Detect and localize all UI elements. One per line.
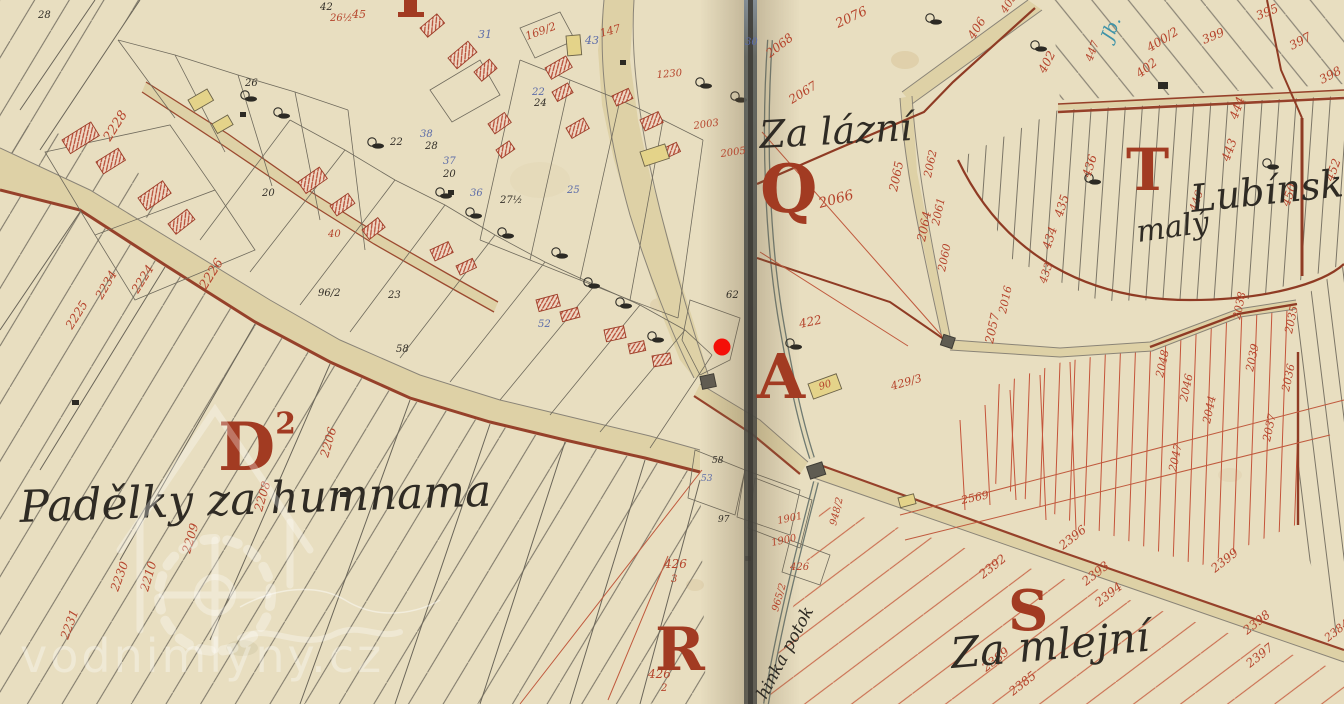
parcel-number: 27½ bbox=[499, 195, 522, 206]
watermark-text: vodnimlyny.cz bbox=[20, 629, 384, 683]
map-canvas[interactable]: 2228222622242225223422062208220922102230… bbox=[0, 0, 1344, 704]
parcel-number: 20 bbox=[442, 169, 456, 180]
parcel-number: 43 bbox=[584, 34, 599, 47]
parcel-number: 97 bbox=[718, 515, 730, 525]
section-letter-q: Q bbox=[760, 150, 818, 228]
parcel-number: 22 bbox=[389, 137, 403, 148]
cadastral-map-screenshot: 2228222622242225223422062208220922102230… bbox=[0, 0, 1344, 704]
parcel-number: 426 bbox=[663, 557, 687, 571]
section-letter-a: A bbox=[756, 340, 806, 413]
section-letter-t: T bbox=[1126, 136, 1169, 204]
parcel-number: 3 bbox=[671, 574, 677, 585]
parcel-number: 426 bbox=[789, 562, 810, 573]
parcel-number: 96/2 bbox=[318, 288, 340, 299]
parcel-number: 37 bbox=[443, 156, 456, 167]
parcel-number: 58 bbox=[712, 456, 724, 466]
parcel-number: 24 bbox=[533, 98, 547, 109]
parcel-number: 53 bbox=[701, 474, 713, 484]
parcel-number: 62 bbox=[726, 290, 739, 301]
parcel-number: 42 bbox=[319, 2, 333, 13]
parcel-number: 31 bbox=[478, 28, 492, 41]
parcel-number: 23 bbox=[387, 290, 401, 301]
sheet-seam-core bbox=[748, 0, 753, 704]
parcel-number: 40 bbox=[327, 229, 341, 240]
parcel-number: 58 bbox=[396, 344, 409, 355]
parcel-number: 36 bbox=[470, 188, 483, 199]
parcel-number: 38 bbox=[420, 129, 433, 140]
parcel-number: 52 bbox=[538, 319, 551, 330]
parcel-number: 1230 bbox=[656, 68, 683, 81]
parcel-number: 28 bbox=[37, 10, 51, 21]
parcel-number: 25 bbox=[566, 185, 580, 196]
section-letter-s: S bbox=[1008, 578, 1048, 644]
parcel-number: 30 bbox=[745, 37, 758, 48]
parcel-number: 45 bbox=[351, 8, 366, 21]
parcel-number: 20 bbox=[261, 188, 275, 199]
parcel-number: 26 bbox=[244, 78, 258, 89]
parcel-number: 26½ bbox=[329, 13, 352, 24]
parcel-number: 22 bbox=[531, 87, 545, 98]
parcel-number: 28 bbox=[424, 141, 438, 152]
red-dot-marker bbox=[714, 339, 731, 356]
section-letter-r: R bbox=[655, 615, 706, 685]
